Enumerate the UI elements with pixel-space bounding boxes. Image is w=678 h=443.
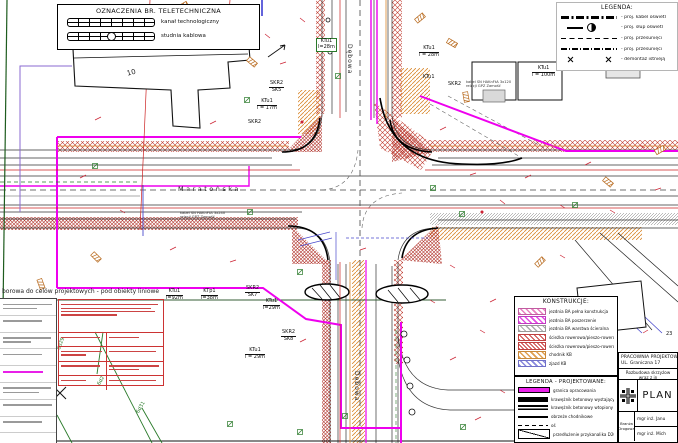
legend-item-label: ścieżka rowerowa/pieszo-rowerowa KB xyxy=(549,344,614,349)
teletech-legend: OZNACZENIA BR. TELETECHNICZNA kanał tech… xyxy=(57,4,260,50)
legend-item: zjazd KB xyxy=(515,359,617,368)
legend-item-label: - demontaż istnieją xyxy=(621,57,665,62)
legend-item: jezdnia BA warstwa ścieralna xyxy=(515,324,617,333)
red-hatch-swatch xyxy=(518,334,546,342)
legend-item-label: obrzeże chodnikowe xyxy=(551,414,593,419)
legend-item: kanał technologiczny xyxy=(58,15,259,29)
legend-item-label: krawężnik betonowy wystający xyxy=(551,397,614,402)
table-row xyxy=(59,376,163,389)
lighting-legend: LEGENDA: - proj. kabel oświetl- proj. sł… xyxy=(556,2,678,71)
kanal-symbol xyxy=(67,18,155,27)
branch-label: Branża Drogowa xyxy=(619,412,635,441)
designed-elements-legend-title: LEGENDA - PROJEKTOWANE: xyxy=(515,379,617,385)
legend-item-label: oś xyxy=(551,423,556,428)
table-row xyxy=(0,417,56,434)
designer-name: mgr inż. Janu xyxy=(635,412,677,427)
teletech-legend-rows: kanał technologicznystudnia kablowa xyxy=(58,15,259,43)
title-block: PRACOWNIA PROJEKTOW UL. Graniczna 17 Roz… xyxy=(618,352,678,443)
legend-item: jezdnia BA poszerzenie xyxy=(515,316,617,325)
legend-item: krawężnik betonowy wystający xyxy=(515,395,617,404)
legend-item: krawężnik betonowy wtopiony xyxy=(515,404,617,413)
construction-legend-rows: jezdnia BA pełna konstrukcjajezdnia BA p… xyxy=(515,307,617,368)
legend-item-label: - proj. przesunięci xyxy=(621,47,662,52)
table-row xyxy=(59,362,163,376)
gray-hatch-swatch xyxy=(518,325,546,333)
construction-legend-title: KONSTRUKCJE: xyxy=(515,299,617,305)
table-row xyxy=(59,333,163,347)
legend-item-label: chodnik KB xyxy=(549,352,572,357)
legend-item: ścieżka rowerowa/pieszo-rowerowa KB xyxy=(515,342,617,351)
pink-hatch-swatch xyxy=(518,308,546,316)
table-row xyxy=(59,300,163,333)
legend-item-label: - proj. słup oświetl xyxy=(621,25,663,30)
legend-item: - proj. kabel oświetl xyxy=(557,12,677,23)
xx-symbol xyxy=(561,55,617,64)
survey-table xyxy=(0,298,57,443)
table-row xyxy=(0,333,56,350)
diag-box-symbol xyxy=(518,429,550,439)
table-row xyxy=(0,383,56,400)
legend-item: studnia kablowa xyxy=(58,29,259,43)
legend-item: ścieżka rowerowa/pieszo-rowerowa BA xyxy=(515,333,617,342)
dash-line-symbol xyxy=(518,425,548,427)
legend-item-label: jezdnia BA warstwa ścieralna xyxy=(549,326,609,331)
company-address: UL. Graniczna 17 xyxy=(621,361,677,367)
legend-item-label: - proj. kabel oświetl xyxy=(621,15,666,20)
legend-item-label: studnia kablowa xyxy=(161,33,206,39)
legend-item: przedłużenie przykanalika D200 xyxy=(515,430,617,439)
dashdot-bold-symbol xyxy=(561,16,617,19)
lamp-symbol xyxy=(561,23,617,32)
legend-item-label: - proj. przesunięci xyxy=(621,36,662,41)
orange-hatch-swatch xyxy=(518,351,546,359)
magenta-hatch-swatch xyxy=(518,316,546,324)
legend-item: - demontaż istnieją xyxy=(557,54,677,65)
legend-item-label: granica opracowania xyxy=(553,388,596,393)
thick-bar2-symbol xyxy=(518,405,548,410)
designed-elements-legend: LEGENDA - PROJEKTOWANE: granica opracowa… xyxy=(514,376,618,443)
dashed-symbol xyxy=(561,38,617,40)
title-block-project: Rozbudowa skrzyżow wraz z in xyxy=(619,369,677,380)
legend-item: granica opracowania xyxy=(515,386,617,395)
legend-item: chodnik KB xyxy=(515,350,617,359)
legend-item: jezdnia BA pełna konstrukcja xyxy=(515,307,617,316)
lighting-legend-rows: - proj. kabel oświetl- proj. słup oświet… xyxy=(557,12,677,65)
legend-item: - proj. przesunięci xyxy=(557,44,677,55)
legend-item-label: kanał technologiczny xyxy=(161,19,219,25)
legend-item: obrzeże chodnikowe xyxy=(515,412,617,421)
thin-bar-symbol xyxy=(518,416,548,419)
table-row xyxy=(0,299,56,316)
title-block-drawing: PLAN xyxy=(619,380,677,412)
legend-item-label: ścieżka rowerowa/pieszo-rowerowa BA xyxy=(549,335,614,340)
lighting-legend-title: LEGENDA: xyxy=(557,5,677,11)
dashdot-symbol xyxy=(561,48,617,50)
table-row xyxy=(0,366,56,383)
studnia-symbol xyxy=(67,32,155,41)
table-row xyxy=(0,316,56,333)
legend-item: - proj. słup oświetl xyxy=(557,23,677,34)
table-row xyxy=(59,347,163,361)
title-block-company: PRACOWNIA PROJEKTOW UL. Graniczna 17 xyxy=(619,353,677,369)
red2-hatch-swatch xyxy=(518,342,546,350)
legend-item: - proj. przesunięci xyxy=(557,33,677,44)
designed-elements-legend-rows: granica opracowaniakrawężnik betonowy wy… xyxy=(515,386,617,439)
legend-item-label: krawężnik betonowy wtopiony xyxy=(551,405,613,410)
table-row xyxy=(0,349,56,366)
legend-item-label: jezdnia BA pełna konstrukcja xyxy=(549,309,608,314)
drawing-title: PLAN xyxy=(638,380,677,411)
legend-item-label: zjazd KB xyxy=(549,361,566,366)
magenta-line-symbol xyxy=(518,387,550,393)
construction-legend: KONSTRUKCJE: jezdnia BA pełna konstrukcj… xyxy=(514,296,618,376)
legend-item-label: przedłużenie przykanalika D200 xyxy=(553,432,614,437)
legend-item-label: jezdnia BA poszerzenie xyxy=(549,318,596,323)
teletech-legend-title: OZNACZENIA BR. TELETECHNICZNA xyxy=(58,7,259,15)
designer-name: mgr inż. Mich xyxy=(635,427,677,441)
table-row xyxy=(0,400,56,417)
blue-hatch-swatch xyxy=(518,360,546,368)
thick-bar-symbol xyxy=(518,397,548,402)
notes-table xyxy=(58,299,164,386)
title-block-signatures: Branża Drogowa mgr inż. Janu mgr inż. Mi… xyxy=(619,412,677,441)
intersection-icon xyxy=(619,380,638,411)
map-basis-note: borowa do celów projektowych - pod obiek… xyxy=(2,288,159,295)
